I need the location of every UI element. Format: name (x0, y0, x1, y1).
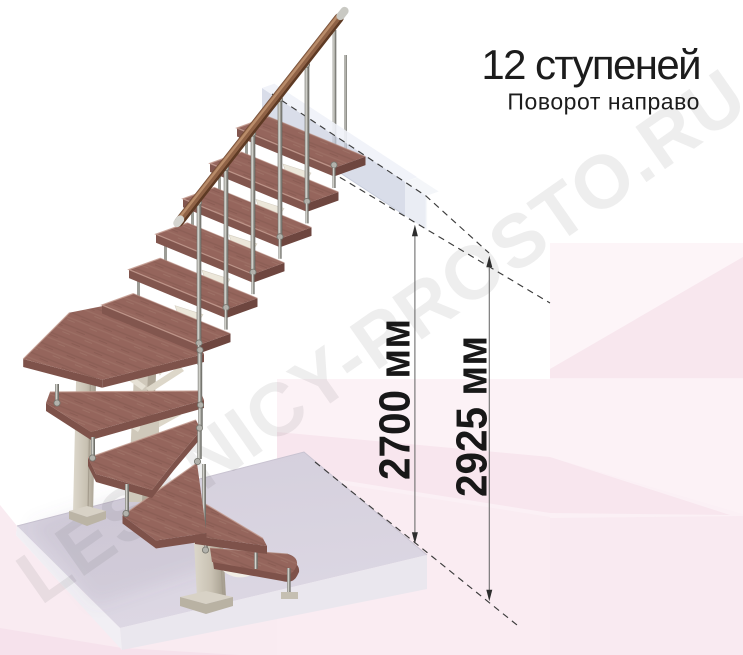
svg-text:2700 мм: 2700 мм (370, 319, 419, 480)
svg-text:12 ступеней: 12 ступеней (481, 41, 700, 88)
svg-text:2925 мм: 2925 мм (447, 336, 496, 497)
svg-text:Поворот направо: Поворот направо (507, 89, 700, 115)
